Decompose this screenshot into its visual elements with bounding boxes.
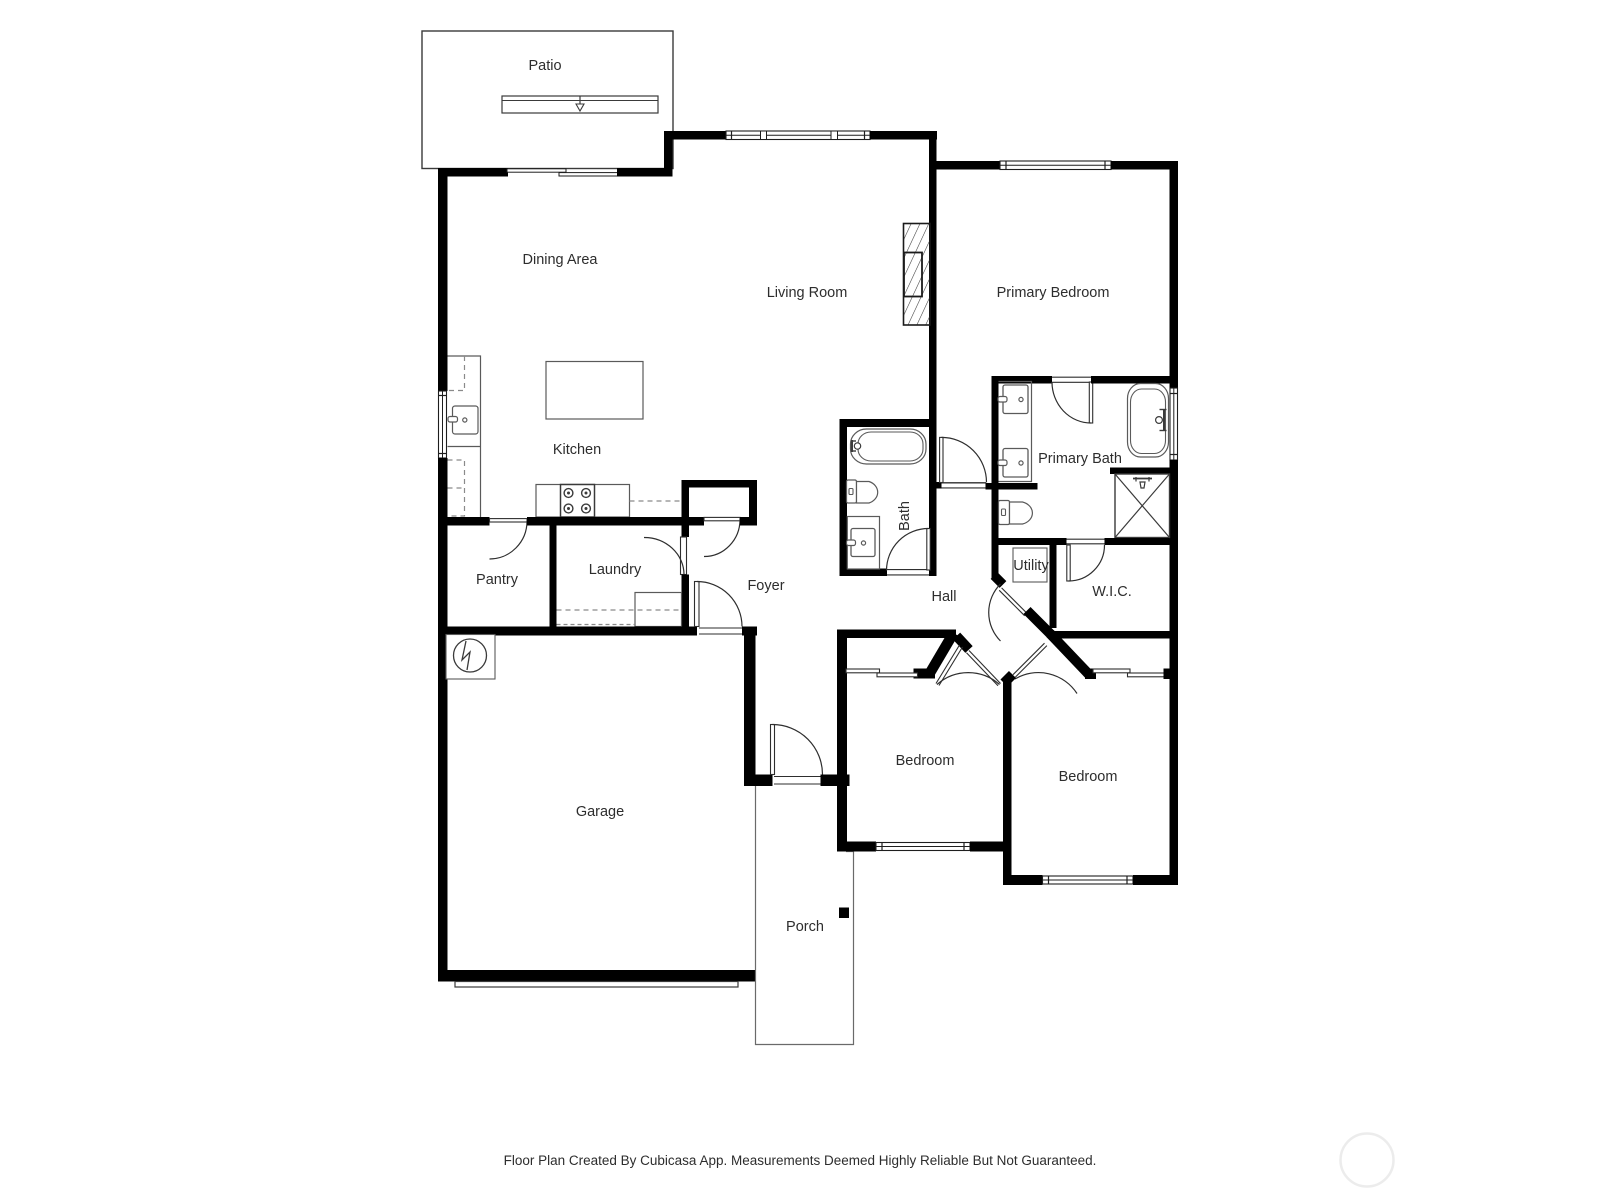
svg-text:Utility: Utility (1013, 558, 1049, 574)
svg-text:Living Room: Living Room (767, 285, 848, 301)
svg-text:Bath: Bath (897, 501, 913, 531)
svg-text:Laundry: Laundry (589, 562, 642, 578)
svg-text:Porch: Porch (786, 919, 824, 935)
svg-text:Kitchen: Kitchen (553, 442, 601, 458)
svg-text:Bedroom: Bedroom (896, 753, 955, 769)
svg-text:Primary Bath: Primary Bath (1038, 451, 1122, 467)
svg-text:Pantry: Pantry (476, 572, 519, 588)
svg-text:Primary Bedroom: Primary Bedroom (997, 285, 1110, 301)
svg-text:Bedroom: Bedroom (1059, 769, 1118, 785)
svg-text:Dining Area: Dining Area (523, 252, 599, 268)
svg-text:Foyer: Foyer (747, 578, 784, 594)
svg-text:W.I.C.: W.I.C. (1092, 584, 1131, 600)
svg-text:Patio: Patio (528, 58, 561, 74)
svg-text:Garage: Garage (576, 804, 624, 820)
svg-text:Hall: Hall (932, 589, 957, 605)
svg-text:Floor Plan Created By Cubicasa: Floor Plan Created By Cubicasa App. Meas… (504, 1153, 1097, 1168)
